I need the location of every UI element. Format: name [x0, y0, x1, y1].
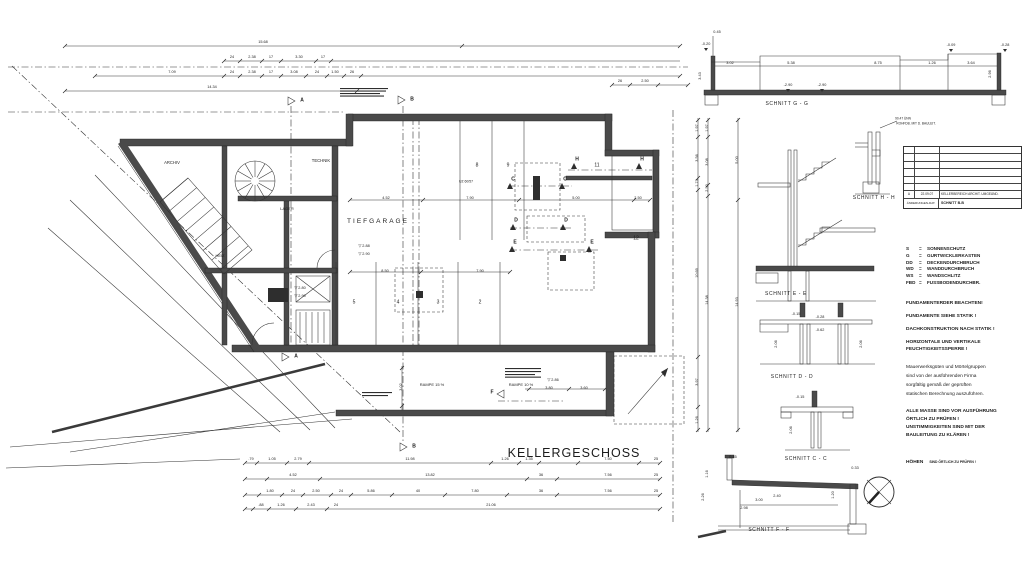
dimension-label: 2.40 [773, 495, 780, 499]
dimension-label: 36 [539, 474, 543, 478]
section-marker-label: E [590, 241, 593, 246]
dimension-label: 17 [321, 56, 325, 60]
dimension-label: 2.06 [775, 340, 779, 347]
dimension-label: 14.93 [736, 297, 740, 307]
section-marker-label: C [511, 178, 515, 183]
dimension-label: 2.43 [307, 504, 314, 508]
dimension-label: 8.50 [381, 270, 388, 274]
dimension-label: 7.80 [471, 490, 478, 494]
dimension-label: 8.75 [874, 62, 881, 66]
dimension-label: 2.50 [634, 197, 641, 201]
dimension-label: 25 [654, 490, 658, 494]
dimension-label: 40 [416, 490, 420, 494]
hoehen-note: HÖHENSIND ÖRTLICH ZU PRÜFEN ! [906, 450, 976, 468]
revision-letter: A [904, 191, 915, 198]
legend-leg-eq: = [919, 280, 927, 287]
legend-leg-eq: = [919, 273, 927, 280]
dimension-label: 4.52 [382, 197, 389, 201]
dimension-label: 5.00 [572, 197, 579, 201]
legend-leg-name: FUSSBODENDURCHBR. [927, 280, 980, 287]
dimension-label: 2.98 [740, 507, 747, 511]
dimension-label: 1.26 [277, 504, 284, 508]
title-block-row: ÄNDERUNGEN-DAT. SCHNITT B-B [904, 199, 1021, 208]
dimension-label: 3.56 [696, 154, 700, 161]
hoehen-label: HÖHEN [906, 460, 923, 465]
plan-label: UZ 60/57 [459, 180, 473, 183]
note-line: DACHKONSTRUKTION NACH STATIK ! [906, 328, 995, 333]
dimension-label: 3.02 [400, 383, 404, 390]
dimension-label: 2.79 [294, 458, 301, 462]
dimension-label: -0.28 [1001, 44, 1010, 48]
dimension-label: 1.80 [266, 490, 273, 494]
section-h-h [855, 121, 897, 194]
dimension-label: .88 [258, 504, 263, 508]
section-f-label: SCHNITT F - F [748, 527, 789, 533]
dimension-label: 1.26 [928, 62, 935, 66]
dimension-label: 24 [334, 504, 338, 508]
legend-item: WD=WANDDURCHBRUCH [906, 266, 1024, 273]
legend-leg-eq: = [919, 260, 927, 267]
plan-label: TIEFGARAGE [347, 219, 409, 226]
legend-leg-name: WANDDURCHBRUCH [927, 266, 974, 273]
section-marker-label: D [564, 219, 568, 224]
dimension-label: 0.45 [729, 456, 736, 460]
plan-label: ▽ 2.86 [547, 379, 558, 383]
dimension-label: 1.97 [696, 124, 700, 131]
legend-leg-eq: = [919, 246, 927, 253]
section-g-g [704, 36, 1007, 105]
dimension-label: 1.20 [832, 491, 836, 498]
section-marker-label: H [575, 158, 579, 163]
revision-table: A 22.09.07 KELLERBEREICH ARCHIT. UMGEÄND… [903, 146, 1022, 209]
dimension-label: 36 [539, 490, 543, 494]
section-marker-label: E [513, 241, 516, 246]
dimension-label: 11.98 [405, 458, 414, 462]
dimension-label: 1.05 [268, 458, 275, 462]
dimension-label: 17 [269, 56, 273, 60]
section-e-label: SCHNITT E - E [765, 291, 807, 297]
title-block-sheet: SCHNITT B-B [939, 199, 1021, 208]
dimension-label: 3.08 [706, 158, 710, 165]
section-marker-label: B [410, 98, 414, 103]
notes-block-1: FUNDAMENTERDER BEACHTEN!FUNDAMENTE SIEHE… [906, 302, 1024, 362]
dimension-label: 3.97 [696, 378, 700, 385]
section-e-e [756, 150, 876, 301]
dimension-label: 2.96 [989, 70, 993, 77]
legend-leg-name: SONNENSCHUTZ [927, 246, 965, 253]
note-line: ÖRTLICH ZU PRÜFEN ! [906, 418, 959, 423]
dimension-label: 25 [654, 474, 658, 478]
dimension-label: 7.90 [466, 197, 473, 201]
note-line: ALLE MASSE SIND VOR AUSFÜHRUNG [906, 410, 997, 415]
dimension-label: 14.34 [207, 86, 217, 90]
notes-block-2: ALLE MASSE SIND VOR AUSFÜHRUNGÖRTLICH ZU… [906, 410, 1024, 446]
note-line: BAULEITUNG ZU KLÄREN ! [906, 434, 969, 439]
legend-leg-eq: = [919, 253, 927, 260]
dimension-label: 26 [618, 80, 622, 84]
dimension-label: 24 [315, 71, 319, 75]
dimension-label: -0.20 [702, 43, 711, 47]
dimension-label: 13.82 [425, 474, 435, 478]
dimension-label: -2.90 [818, 84, 827, 88]
dimension-label: 1.26 [696, 416, 700, 423]
legend-leg-abbr: FBD [906, 280, 919, 287]
section-marker-label: B [412, 445, 416, 450]
section-marker-label: C [563, 178, 567, 183]
section-marker-label: F [490, 391, 493, 396]
plan-label: 8 [476, 164, 479, 169]
plan-label: 11 [594, 164, 599, 169]
drawing-title: KELLERGESCHOSS [508, 446, 641, 460]
section-f-f [698, 455, 866, 537]
dimension-label: 2.26 [702, 493, 706, 500]
dimension-label: 2.50 [641, 80, 648, 84]
section-c-c [781, 391, 853, 450]
legend-leg-name: DECKENDURCHBRUCH [927, 260, 980, 267]
plan-label: 2 [479, 301, 482, 306]
plan-label: RAMPE 15 % [420, 383, 444, 387]
plan-label: ▽ 2.90 [294, 295, 305, 299]
legend-item: DD=DECKENDURCHBRUCH [906, 260, 1024, 267]
plan-label: RAMPE 10 % [509, 383, 533, 387]
plan-label: TECHNIK [312, 159, 330, 163]
section-marker-label: A [300, 99, 304, 104]
legend-item: WS=WANDSCHLITZ [906, 273, 1024, 280]
abbreviation-legend: S=SONNENSCHUTZG=GURTWICKLERKASTENDD=DECK… [906, 246, 1024, 287]
plan-label: ▽ 2.80 [294, 287, 305, 291]
drawing-sheet: TIEFGARAGEARCHIVTECHNIKLAGERHEIZ89111254… [0, 0, 1024, 576]
dimension-label: 7.09 [168, 71, 175, 75]
revision-row: A 22.09.07 KELLERBEREICH ARCHIT. UMGEÄND… [904, 191, 1021, 199]
dimension-label: 3.00 [755, 499, 762, 503]
dimension-label: 26 [350, 71, 354, 75]
dimension-label: 14.38 [706, 295, 710, 305]
dimension-label: 24 [339, 490, 343, 494]
dimension-label: 1.16 [706, 470, 710, 477]
dimension-label: 2.06 [790, 426, 794, 433]
north-arrow-icon [864, 477, 894, 507]
legend-item: G=GURTWICKLERKASTEN [906, 253, 1024, 260]
dimension-label: 21.06 [486, 504, 496, 508]
note-line: HORIZONTALE UND VERTIKALE [906, 341, 981, 346]
plan-label: HEIZ [215, 254, 224, 258]
dimension-label: 3.43 [699, 72, 703, 79]
dimension-label: 24 [230, 71, 234, 75]
title-block-label: ÄNDERUNGEN-DAT. [904, 199, 939, 208]
legend-leg-eq: = [919, 266, 927, 273]
dimension-label: 7.56 [604, 474, 611, 478]
dimension-label: -0.15 [796, 396, 805, 400]
dimension-label: 0.33 [851, 467, 858, 471]
legend-leg-abbr: DD [906, 260, 919, 267]
dimension-label: 17 [269, 71, 273, 75]
plan-label: LAGER [280, 207, 294, 211]
dimension-label: 2.06 [860, 340, 864, 347]
drawing-canvas [0, 0, 1024, 576]
dimension-label: 1.97 [706, 124, 710, 131]
dimension-label: 1.73 [696, 179, 700, 186]
dimension-label: 2.50 [706, 184, 710, 191]
legend-leg-name: GURTWICKLERKASTEN [927, 253, 980, 260]
dimension-label: -0.62 [816, 329, 825, 333]
legend-leg-abbr: WS [906, 273, 919, 280]
section-marker-label: A [294, 355, 298, 360]
plan-label: 4 [397, 301, 400, 306]
dimension-label: 2.50 [312, 490, 319, 494]
dimension-label: -2.90 [784, 84, 793, 88]
dimension-label: 3.60 [580, 387, 587, 391]
dimension-label: 5.38 [787, 62, 794, 66]
dimension-label: 10.69 [696, 268, 700, 278]
legend-item: FBD=FUSSBODENDURCHBR. [906, 280, 1024, 287]
revision-date: 22.09.07 [915, 191, 940, 198]
plan-label: 12 [633, 237, 639, 242]
dimension-label: -0.15 [792, 313, 801, 317]
section-c-label: SCHNITT C - C [785, 456, 827, 462]
dimension-label: 15.68 [258, 41, 268, 45]
dimension-label: 5.86 [367, 490, 374, 494]
dimension-label: 7.56 [604, 490, 611, 494]
section-d-label: SCHNITT D - D [771, 374, 813, 380]
note-line: UNSTIMMIGKEITEN SIND MIT DER [906, 426, 985, 431]
dimension-label: 90.47 ÜNN [895, 117, 911, 120]
dimension-label: 0.45 [713, 31, 720, 35]
hoehen-rest: SIND ÖRTLICH ZU PRÜFEN ! [929, 460, 976, 464]
section-g-label: SCHNITT G - G [766, 101, 809, 107]
dimension-label: 24 [291, 490, 295, 494]
dimension-label: 1.50 [331, 71, 338, 75]
note-line: FEUCHTIGKEITSSPERRE ! [906, 348, 967, 353]
section-marker-label: H [640, 158, 644, 163]
dimension-label: 3.64 [967, 62, 974, 66]
legend-leg-abbr: G [906, 253, 919, 260]
section-marker-label: D [514, 219, 518, 224]
plan-label: ARCHIV [164, 161, 180, 165]
legend-leg-abbr: WD [906, 266, 919, 273]
plan-label: 3 [437, 301, 440, 306]
dimension-label: 24 [230, 56, 234, 60]
note-line: FUNDAMENTERDER BEACHTEN! [906, 302, 983, 307]
note-line: sind von der ausführenden Firma [906, 375, 976, 380]
dimension-label: 2.38 [248, 56, 255, 60]
note-line: FUNDAMENTE SIEHE STATIK ! [906, 315, 976, 320]
plan-label: 9 [507, 164, 510, 169]
dimension-label: 5.00 [736, 156, 740, 163]
plan-label: ▽ 2.88 [358, 245, 369, 249]
dimension-label: -0.28 [816, 316, 825, 320]
dimension-label: ROHFDB. MIT D. BAULEIT. [896, 122, 935, 125]
legend-leg-abbr: S [906, 246, 919, 253]
dimension-label: 25 [654, 458, 658, 462]
plan-label: 5 [353, 301, 356, 306]
dimension-label: 3.08 [290, 71, 297, 75]
note-line: Mauerwerksgüten und Mörtelgruppen [906, 366, 986, 371]
dimension-label: 7.90 [476, 270, 483, 274]
plan-label: ▽ 2.90 [358, 253, 369, 257]
dimension-label: -0.09 [947, 44, 956, 48]
note-line: statischen Berechnung auszuführen. [906, 393, 984, 398]
dimension-label: 4.52 [289, 474, 296, 478]
legend-item: S=SONNENSCHUTZ [906, 246, 1024, 253]
dimension-label: 3.80 [545, 387, 552, 391]
dimension-label: .79 [248, 458, 253, 462]
note-line: sorgfältig gemäß der geprüften [906, 384, 972, 389]
dimension-label: 3.02 [726, 62, 733, 66]
section-h-label: SCHNITT H - H [853, 195, 895, 201]
revision-desc: KELLERBEREICH ARCHIT. UMGEÄND. [940, 191, 1021, 198]
masonry-paragraph: Mauerwerksgüten und Mörtelgruppensind vo… [906, 366, 1024, 406]
dimension-label: 2.38 [248, 71, 255, 75]
legend-leg-name: WANDSCHLITZ [927, 273, 960, 280]
section-d-d [760, 303, 875, 364]
dimension-label: 3.30 [295, 56, 302, 60]
